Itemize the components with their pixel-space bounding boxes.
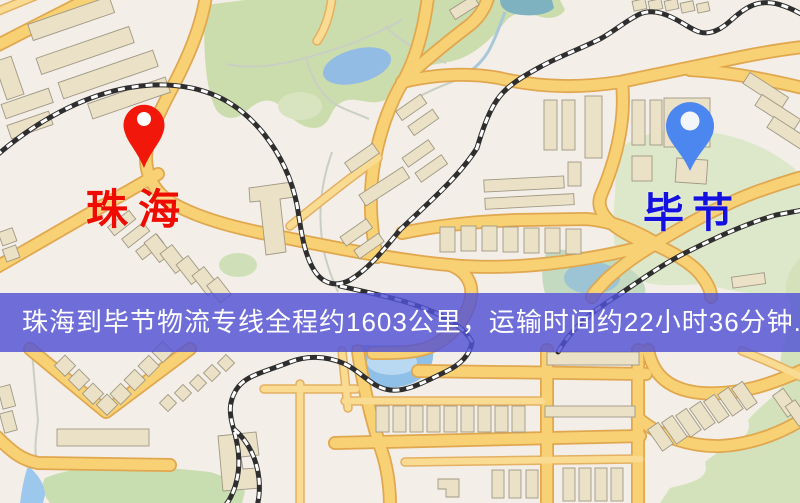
route-banner: 珠海到毕节物流专线全程约1603公里，运输时间约22小时36分钟. — [0, 293, 800, 352]
map-screenshot: 珠海到毕节物流专线全程约1603公里，运输时间约22小时36分钟. 珠海 毕节 — [0, 0, 800, 503]
destination-city-label: 毕节 — [643, 179, 741, 239]
map-canvas[interactable] — [0, 0, 800, 503]
route-banner-text: 珠海到毕节物流专线全程约1603公里，运输时间约22小时36分钟. — [22, 307, 800, 337]
origin-city-label: 珠海 — [86, 176, 190, 237]
